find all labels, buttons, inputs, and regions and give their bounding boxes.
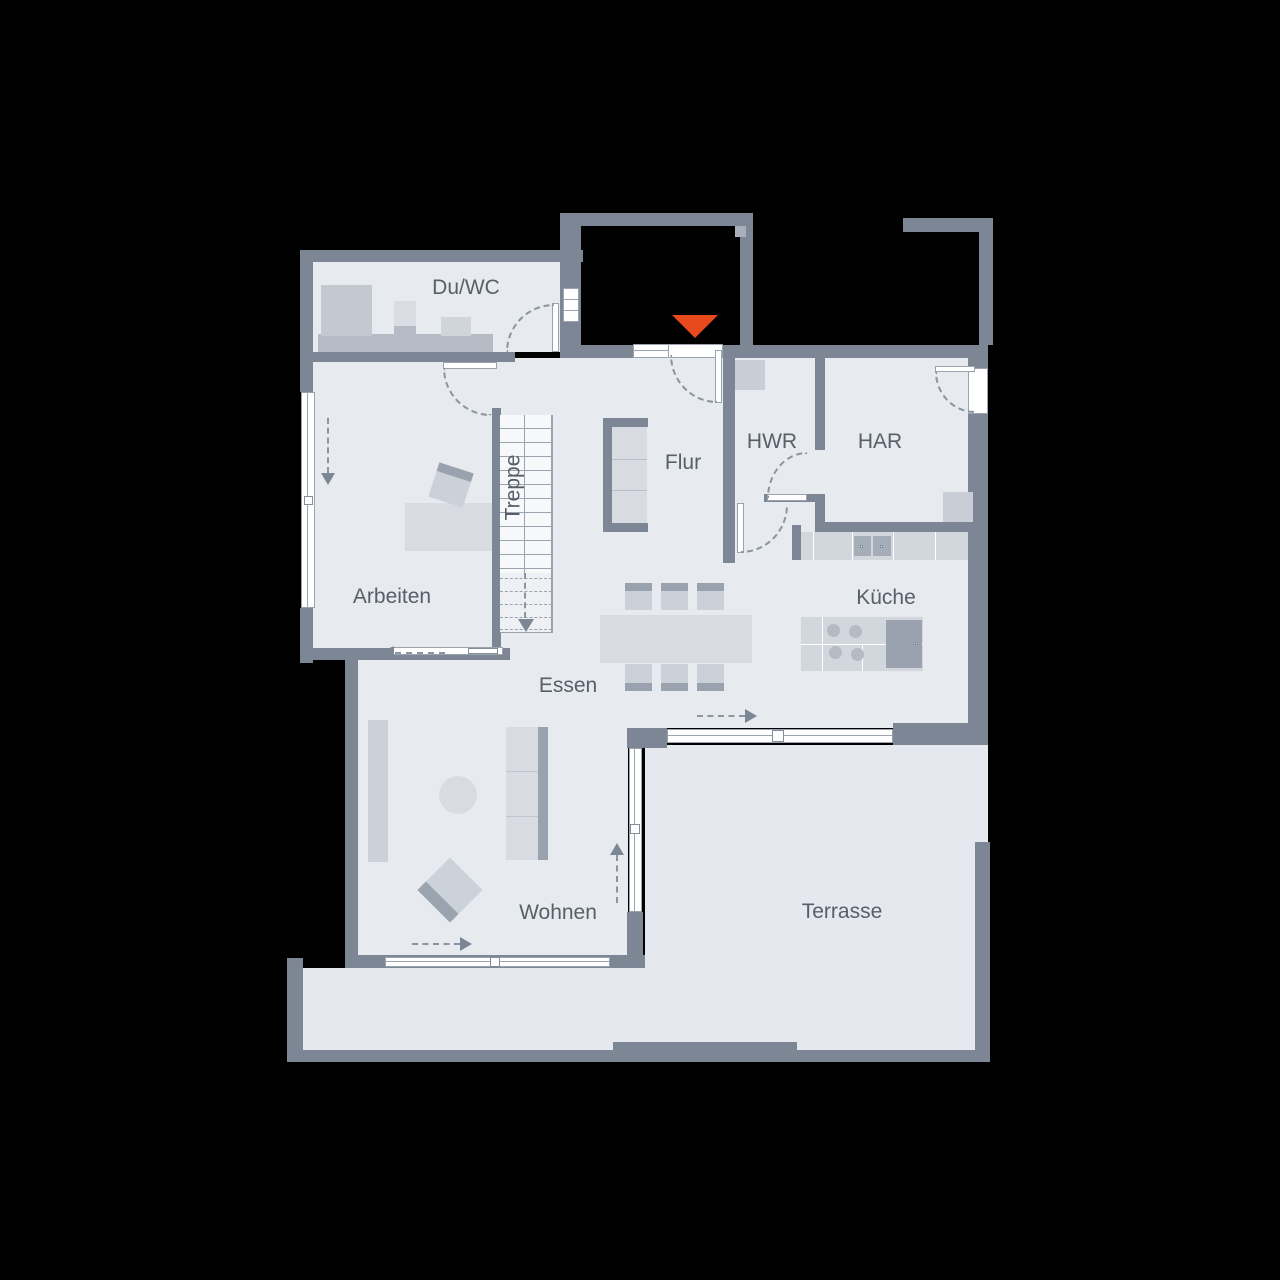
wall-kitchen-stub — [792, 525, 801, 560]
dining-chair-back — [661, 583, 688, 591]
stair-down-arrow — [518, 619, 534, 632]
wall-wohnen-left — [345, 650, 358, 968]
stair-tread-dashed — [500, 591, 552, 592]
toilet — [394, 301, 416, 326]
arrow-left — [382, 646, 394, 660]
wall-top-left — [300, 250, 583, 262]
arrow-shaft — [327, 418, 329, 473]
sink-dot — [860, 545, 863, 548]
terrace-step — [613, 1042, 797, 1060]
wall-alcove-right — [979, 232, 993, 345]
dining-chair-back — [697, 583, 724, 591]
sliding-door-cap — [468, 648, 498, 654]
wardrobe-interior — [612, 427, 647, 523]
sofa-seats — [506, 727, 538, 860]
floor-plan: Du/WC Flur HWR HAR Treppe Arbeiten Küche… — [0, 0, 1280, 1280]
room-label-duwc: Du/WC — [396, 277, 536, 298]
wardrobe-shelf-line — [612, 490, 647, 491]
room-label-wohnen: Wohnen — [488, 902, 628, 923]
dining-chair-back — [697, 683, 724, 691]
bath-counter — [318, 334, 493, 352]
wall-porch-top — [560, 213, 753, 226]
sliding-door-handle — [772, 730, 784, 742]
arrow-right — [745, 709, 757, 723]
wardrobe-frame-bottom — [603, 523, 648, 532]
island-division — [822, 617, 823, 671]
window-handle — [630, 824, 640, 834]
stair-tread-dashed — [500, 578, 552, 579]
arrow-shaft — [395, 652, 445, 654]
dining-table — [600, 615, 752, 663]
counter-division — [813, 532, 814, 560]
dining-chair-back — [625, 583, 652, 591]
wall-alcove-top — [903, 218, 993, 232]
paved-edge-left — [287, 958, 303, 1058]
stair-right-edge — [551, 415, 553, 633]
window-handle — [304, 496, 313, 505]
porch-post — [735, 226, 746, 237]
sink — [441, 317, 471, 336]
window-frame-line — [564, 310, 578, 311]
shower — [321, 285, 372, 336]
room-label-flur: Flur — [613, 452, 753, 473]
wardrobe-frame-top — [603, 418, 648, 427]
door-frame-line — [668, 345, 669, 357]
har-appliance — [943, 492, 973, 522]
sink-dot — [880, 545, 883, 548]
paved-area — [303, 968, 645, 1055]
toilet-base — [394, 326, 416, 336]
room-label-essen: Essen — [498, 675, 638, 696]
wall-corner-essen — [627, 728, 667, 748]
arrow-down — [321, 473, 335, 485]
wall-duwc-bottom — [313, 352, 515, 362]
room-label-treppe: Treppe — [503, 418, 524, 558]
wall-duwc-right-porch-left — [560, 213, 581, 352]
cooktop-burner — [849, 625, 862, 638]
sideboard — [368, 720, 388, 862]
sofa-back — [538, 727, 548, 860]
window-frame-line — [564, 299, 578, 300]
terrace-surface — [645, 842, 975, 1057]
terrace-surface-upper — [645, 745, 988, 842]
stair-tread-dashed — [500, 617, 552, 618]
terrace-edge-right — [975, 842, 990, 1057]
entrance-marker — [672, 315, 718, 338]
wall-kueche-bottom — [893, 723, 978, 745]
hwr-appliance — [735, 360, 765, 390]
arrow-up — [610, 843, 624, 855]
cooktop-burner — [829, 646, 842, 659]
coffee-table — [439, 776, 477, 814]
arrow-shaft — [616, 855, 618, 903]
appliance-dot — [915, 642, 918, 645]
room-label-terrasse: Terrasse — [772, 901, 912, 922]
door-frame-line — [634, 350, 668, 351]
counter-division — [935, 532, 936, 560]
sofa-division — [506, 816, 538, 817]
arrow-shaft — [697, 715, 745, 717]
wall-har-bottom — [815, 522, 968, 532]
window-handle — [490, 957, 500, 967]
cooktop-burner — [851, 648, 864, 661]
wall-main-top — [560, 345, 970, 358]
wall-left-upper — [300, 250, 313, 392]
room-label-kueche: Küche — [816, 587, 956, 608]
dining-chair-back — [661, 683, 688, 691]
wardrobe-frame-left — [603, 418, 612, 532]
counter-division — [852, 532, 853, 560]
wall-wohnen-right-lower — [627, 912, 643, 968]
counter-division — [893, 532, 894, 560]
stair-tread-dashed — [500, 604, 552, 605]
arrow-shaft — [412, 943, 460, 945]
room-label-har: HAR — [810, 431, 950, 452]
desk — [405, 503, 492, 551]
sofa-division — [506, 771, 538, 772]
window-porch-sidelight — [563, 288, 579, 322]
arrow-right — [460, 937, 472, 951]
room-label-arbeiten: Arbeiten — [322, 586, 462, 607]
cooktop-burner — [827, 624, 840, 637]
stair-bottom-edge — [500, 632, 553, 633]
stair-center-line-dashed — [524, 573, 526, 618]
